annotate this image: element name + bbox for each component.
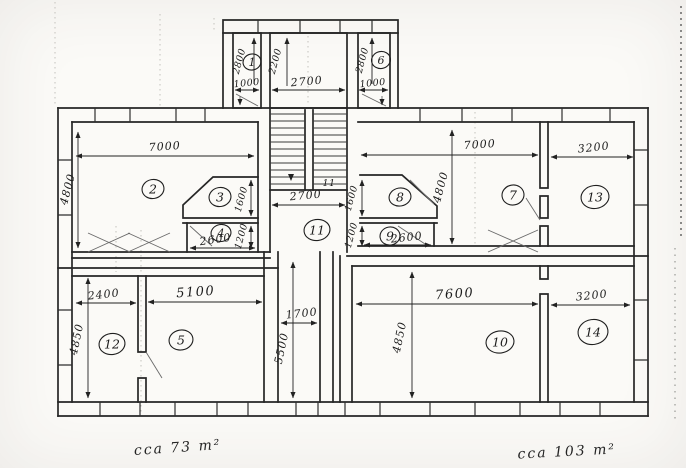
room-marker-14: 14	[576, 318, 609, 347]
dim-room13-width: 3200	[577, 139, 610, 155]
svg-text:8: 8	[396, 190, 404, 205]
stair-divider	[305, 110, 313, 190]
dimension-lines	[76, 38, 633, 398]
dim-room7-height: 4800	[430, 170, 451, 205]
dim-room2-height: 4800	[57, 172, 78, 207]
stair-treads-left	[270, 114, 305, 184]
svg-text:10: 10	[492, 335, 508, 350]
shaft1-door-swing	[236, 94, 258, 106]
dim-room9-width: 2600	[389, 229, 423, 245]
bay-ticks	[258, 20, 372, 33]
area-label-right: cca 103 m²	[517, 441, 616, 462]
svg-text:11: 11	[309, 223, 325, 238]
dim-room5-width: 5100	[176, 284, 216, 302]
wall-ticks	[58, 108, 648, 416]
dim-room14-width: 3200	[575, 287, 608, 303]
partition-12-5	[138, 276, 146, 402]
dim-room2-width: 7000	[148, 139, 181, 154]
room2-window-cross	[88, 233, 170, 252]
area-label-left: cca 73 m²	[133, 437, 222, 459]
dim-corridor-height: 5500	[272, 331, 291, 365]
room-marker-12: 12	[98, 332, 127, 356]
svg-text:4: 4	[217, 227, 225, 240]
dim-room3-height: 1600	[233, 185, 250, 213]
room-marker-3: 3	[208, 186, 233, 209]
scanned-floor-plan: 7000 4800 1600 1200 2600 2800 1000 2200 …	[0, 0, 686, 468]
dim-room7-width: 7000	[463, 137, 496, 152]
partition-10-14	[540, 266, 548, 402]
stair-direction-arrow	[288, 174, 294, 181]
room13-door-swing	[526, 198, 540, 220]
dim-room12-width: 2400	[86, 286, 120, 302]
room-marker-6: 6	[370, 50, 392, 71]
stair-treads-right	[313, 114, 347, 184]
room-marker-11: 11	[303, 218, 332, 242]
outer-walls	[58, 108, 648, 416]
dim-corridor-width: 1700	[285, 305, 318, 321]
left-mid-bottom-wall	[72, 252, 270, 258]
svg-text:5: 5	[177, 333, 185, 348]
svg-text:13: 13	[587, 190, 603, 205]
dim-shaft6-height: 2800	[354, 46, 372, 75]
partition-7-13	[540, 122, 548, 246]
dim-right-block-height: 4850	[390, 320, 410, 355]
corridor-left-wall	[264, 252, 278, 402]
dim-stairs-width: 2700	[288, 188, 322, 204]
right-bottom-block-left	[340, 256, 352, 402]
svg-text:7: 7	[509, 188, 517, 203]
corridor-right-wall	[320, 252, 333, 402]
dim-shaft6-width: 1000	[359, 77, 386, 91]
dim-left-block-height: 4850	[67, 322, 87, 357]
dim-shaft1-width: 1000	[233, 77, 260, 91]
room-marker-13: 13	[580, 184, 611, 211]
dim-stair-count: 11	[322, 178, 335, 189]
right-mid-bottom-wall	[347, 246, 648, 266]
dim-room4-height: 1200	[233, 222, 250, 250]
room-marker-5: 5	[167, 328, 194, 352]
floor-plan-drawing: 7000 4800 1600 1200 2600 2800 1000 2200 …	[0, 0, 686, 468]
svg-text:9: 9	[386, 229, 394, 244]
room-marker-10: 10	[485, 329, 516, 355]
room-marker-2: 2	[141, 178, 166, 201]
room-marker-7: 7	[500, 183, 525, 207]
dim-room10-width: 7600	[435, 286, 475, 304]
area-labels: cca 73 m² cca 103 m²	[133, 437, 616, 463]
svg-text:1: 1	[249, 56, 256, 69]
svg-text:14: 14	[585, 325, 601, 340]
svg-text:12: 12	[104, 337, 120, 352]
svg-text:3: 3	[216, 190, 224, 205]
room-marker-8: 8	[388, 186, 413, 208]
svg-text:6: 6	[378, 54, 385, 67]
room7-window-cross	[488, 230, 538, 252]
interior-walls	[58, 122, 648, 402]
room5-door-swing	[146, 352, 162, 378]
left-bottom-block-top	[58, 268, 278, 276]
dim-room8-height: 1600	[343, 184, 360, 212]
svg-text:2: 2	[148, 182, 157, 197]
dim-stairshaft-width: 2700	[289, 74, 323, 90]
